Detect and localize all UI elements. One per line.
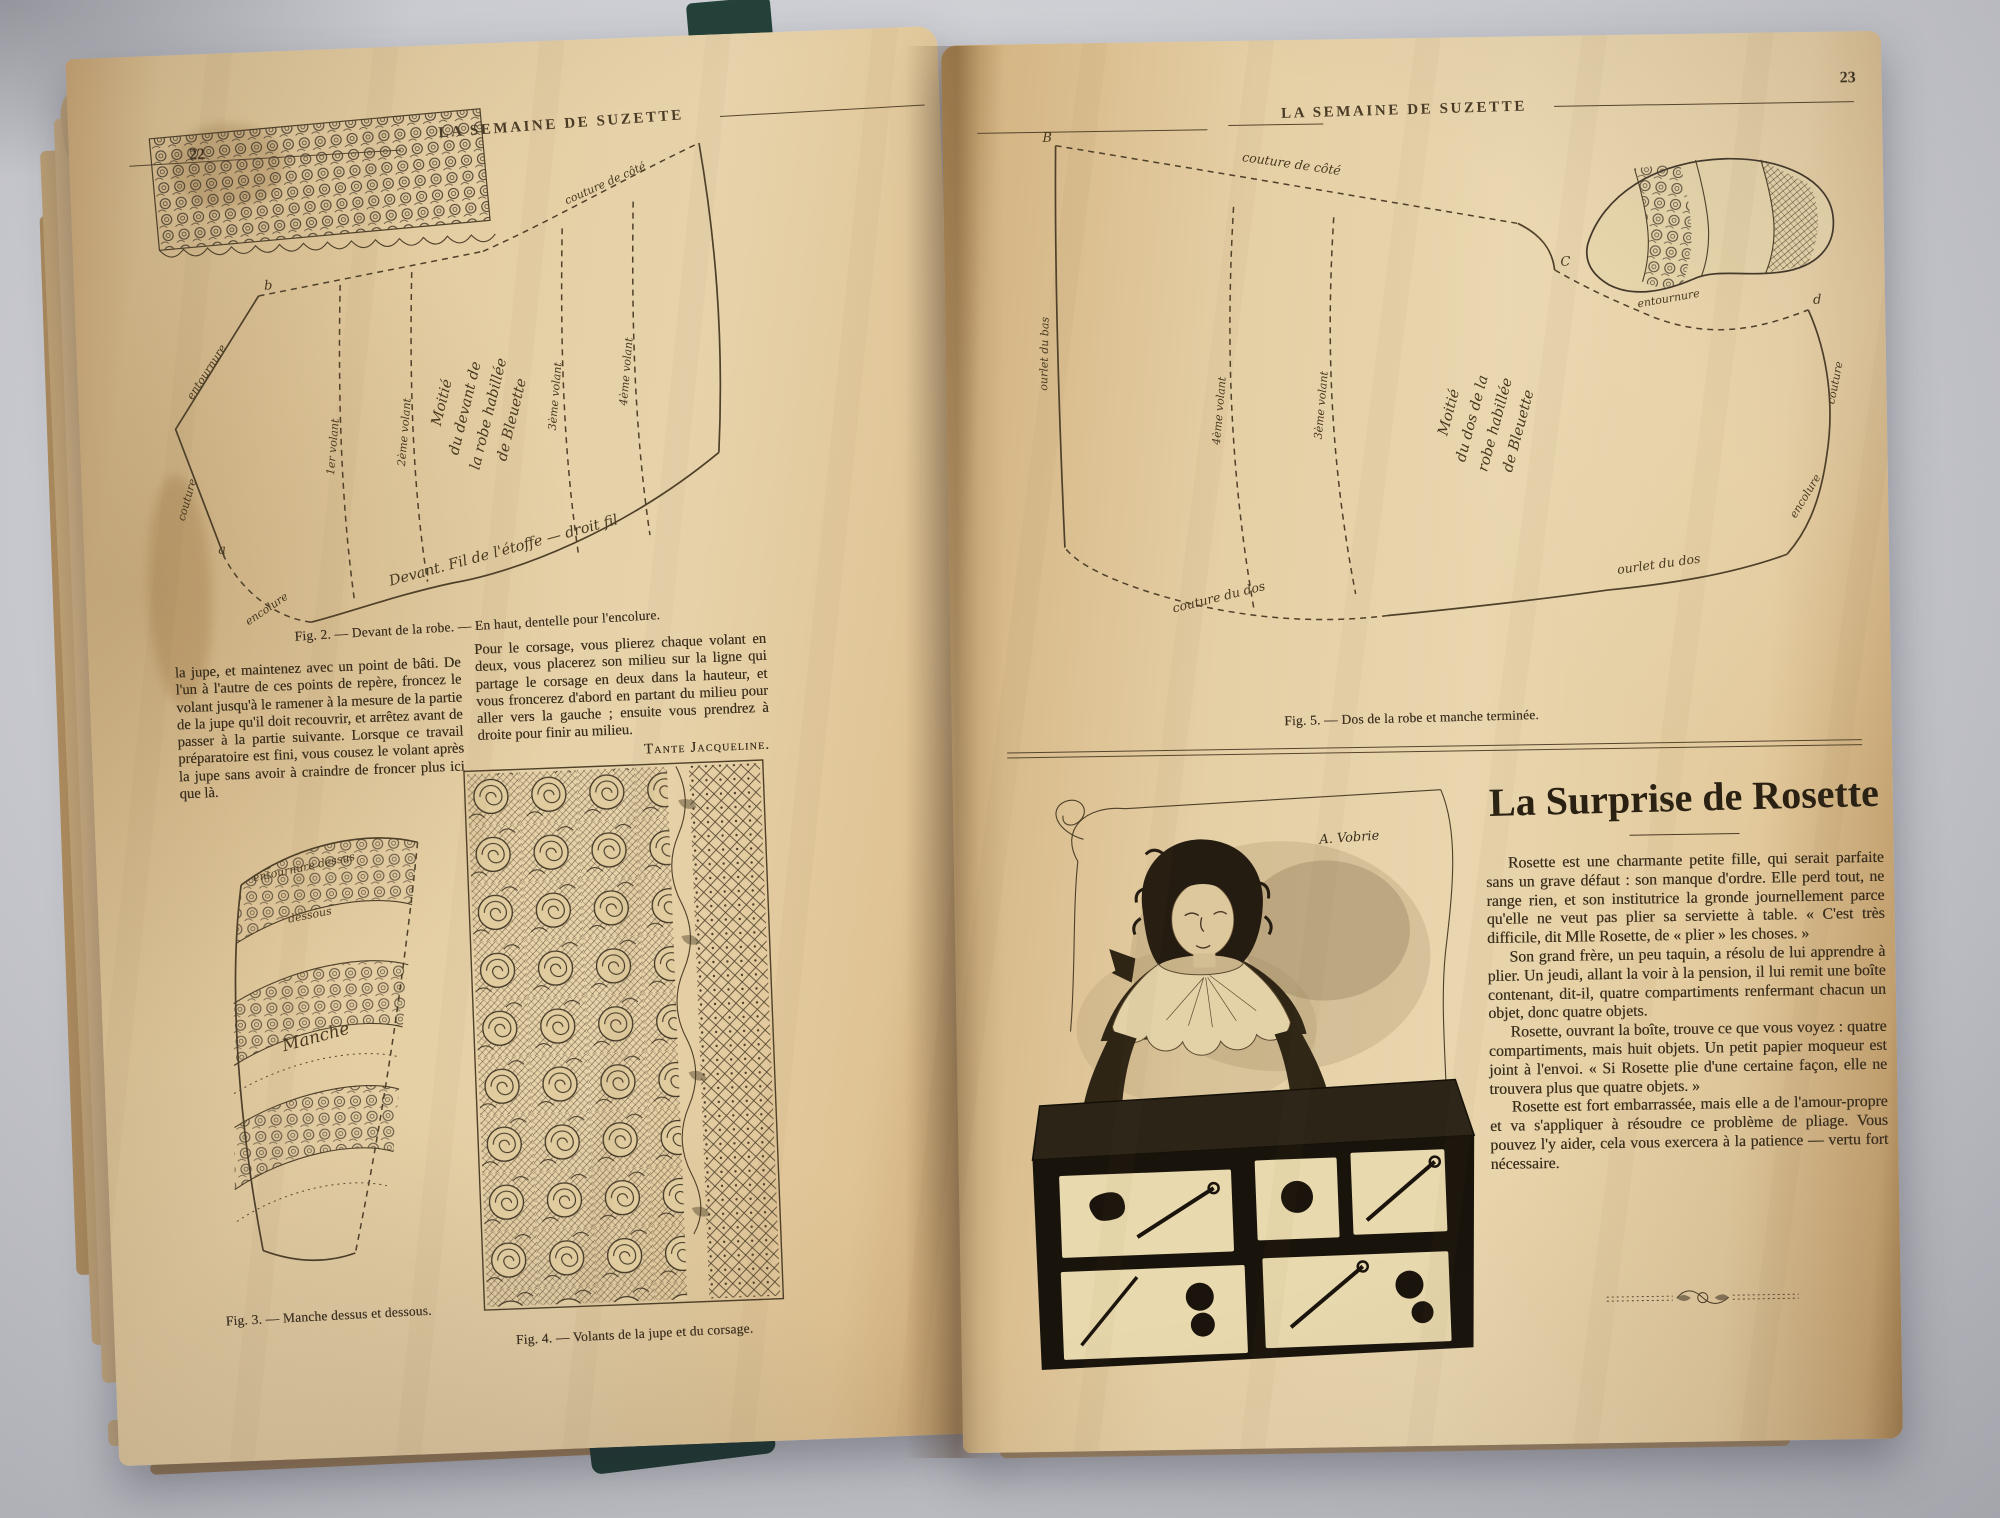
- ribbon-curl: [1056, 800, 1085, 840]
- article-body: Rosette est une charmante petite fille, …: [1486, 849, 1889, 1175]
- compartment-box: [1031, 1079, 1477, 1370]
- pattern-label-volant3: 3ème volant: [1312, 370, 1331, 440]
- pattern-label-volant3: 3ème volant: [546, 361, 565, 431]
- fig4-caption: Fig. 4. — Volants de la jupe et du corsa…: [449, 1317, 819, 1351]
- pattern-corner-letter: b: [264, 278, 273, 293]
- illustrator-signature: A. Vobrie: [1318, 829, 1380, 848]
- compartment: [1059, 1169, 1234, 1258]
- instruction-column-1: la jupe, et maintenez avec un point de b…: [175, 655, 466, 804]
- article-paragraph: Son grand frère, un peu taquin, a résolu…: [1487, 943, 1886, 1024]
- pattern-label-couture-de-cote: couture de côté: [563, 159, 648, 207]
- article-paragraph: Rosette est une charmante petite fille, …: [1486, 849, 1885, 949]
- fig4-lace-panel: [461, 757, 787, 1313]
- rosette-illustration: A. Vobrie: [1012, 763, 1492, 1400]
- pattern-corner-letter: C: [1560, 255, 1570, 270]
- pattern-center-label: Moitié du dos de la robe habillée de Ble…: [1429, 364, 1539, 480]
- title-rule: [1629, 833, 1739, 836]
- end-flourish: [1602, 1276, 1803, 1319]
- neck: [1193, 953, 1215, 967]
- header-rule: [720, 105, 925, 117]
- pattern-label-entournure: entournure: [184, 342, 229, 402]
- pattern-label-ourlet-du-dos: ourlet du dos: [1616, 551, 1701, 577]
- rose-lace-texture: [467, 767, 687, 1307]
- pattern-center-label: Moitié du devant de la robe habillée de …: [421, 345, 534, 477]
- pattern-corner-letter: a: [218, 542, 226, 557]
- fig3-caption: Fig. 3. — Manche dessus et dessous.: [164, 1299, 494, 1332]
- pattern-corner-letter: d: [1813, 293, 1822, 308]
- svg-text:Moitié: Moitié: [429, 377, 456, 428]
- pattern-label-encolure: encolure: [243, 590, 291, 628]
- fig5-pattern-diagram: B C d couture de côté ourlet du bas 4ème…: [960, 101, 1874, 720]
- svg-text:Moitié: Moitié: [1435, 387, 1463, 438]
- face: [1171, 882, 1234, 957]
- pattern-label-volant4: 4ème volant: [617, 336, 636, 407]
- right-page: LA SEMAINE DE SUZETTE 23 B C d couture d…: [941, 31, 1903, 1454]
- section-divider-double-rule: [1007, 739, 1862, 758]
- lace-sample-strip: [149, 108, 496, 271]
- compartment: [1061, 1265, 1248, 1360]
- article-paragraph: Rosette, ouvrant la boîte, trouve ce que…: [1488, 1018, 1887, 1099]
- left-page: LA SEMAINE DE SUZETTE 22 a b couture ent…: [65, 26, 990, 1466]
- finished-sleeve-engraving: [1584, 145, 1839, 309]
- instruction-column-2: Pour le corsage, vous plierez chaque vol…: [474, 631, 769, 745]
- pattern-label-couture: couture: [175, 477, 199, 523]
- article-title: La Surprise de Rosette: [1484, 769, 1883, 826]
- pattern-label-volant4: 4ème volant: [1210, 376, 1229, 447]
- pattern-grainline-label: Devant. Fil de l'étoffe — droit fil: [386, 512, 620, 590]
- pattern-corner-letter: B: [1041, 131, 1052, 146]
- pattern-label-couture: couture: [1824, 360, 1845, 405]
- sleeve-outline: [222, 836, 434, 1263]
- pattern-label-couture-de-cote: couture de côté: [1241, 149, 1342, 178]
- photo-of-open-magazine: { "left_page": { "header": "LA SEMAINE D…: [0, 0, 2000, 1518]
- pattern-label-volant1: 1er volant: [324, 417, 342, 475]
- pattern-label-volant2: 2ème volant: [395, 397, 414, 468]
- pattern-label-ourlet-du-bas: ourlet du bas: [1037, 316, 1051, 390]
- article-paragraph: Rosette est fort embarrassée, mais elle …: [1490, 1093, 1889, 1174]
- page-number: 23: [1839, 69, 1855, 87]
- fig2-pattern-diagram: a b couture entournure encolure couture …: [138, 102, 753, 669]
- fig3-sleeve-diagram: entournure dessus dessous Manche: [176, 785, 470, 1300]
